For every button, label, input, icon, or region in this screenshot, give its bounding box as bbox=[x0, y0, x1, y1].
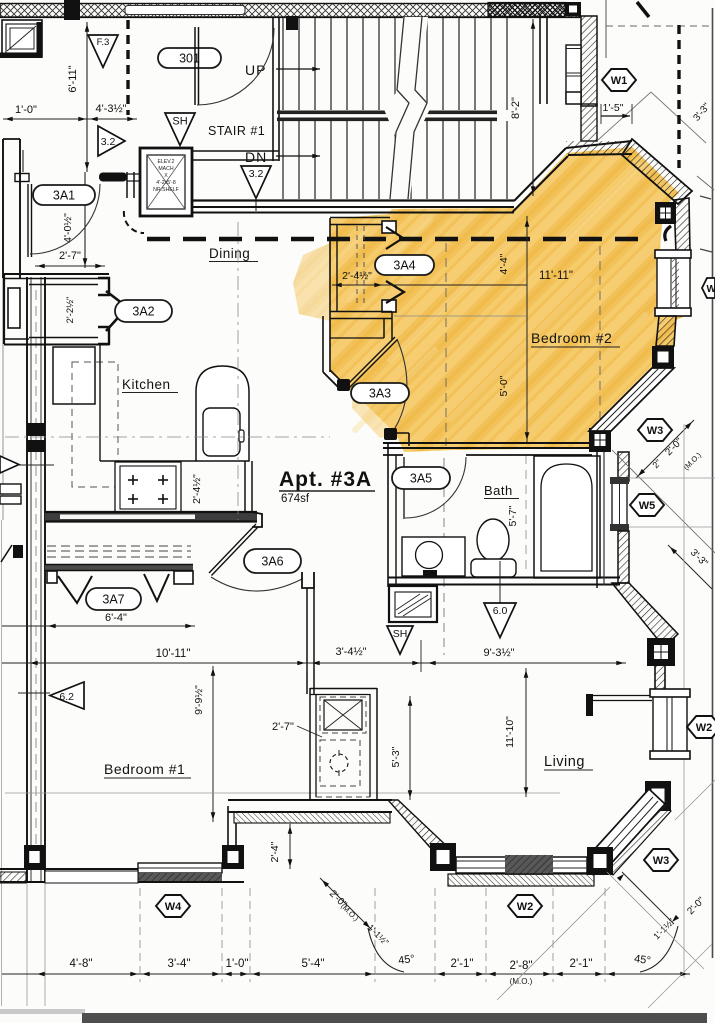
svg-text:3A5: 3A5 bbox=[410, 472, 432, 486]
svg-text:5'-7": 5'-7" bbox=[507, 505, 519, 526]
svg-text:3'-4": 3'-4" bbox=[168, 958, 191, 970]
svg-text:2'-7": 2'-7" bbox=[272, 721, 294, 733]
svg-text:3'-4½": 3'-4½" bbox=[335, 646, 366, 658]
svg-text:10'-11": 10'-11" bbox=[156, 648, 191, 660]
svg-text:MACH: MACH bbox=[158, 166, 174, 172]
svg-text:2'-4½": 2'-4½" bbox=[191, 474, 203, 504]
svg-text:W3: W3 bbox=[653, 855, 670, 867]
svg-text:5'-4": 5'-4" bbox=[302, 958, 325, 970]
svg-text:(M.O.): (M.O.) bbox=[510, 977, 533, 986]
svg-text:3.2: 3.2 bbox=[101, 136, 116, 148]
svg-text:5'-3": 5'-3" bbox=[390, 746, 402, 767]
svg-text:Bedroom #1: Bedroom #1 bbox=[104, 761, 185, 777]
svg-text:3.2: 3.2 bbox=[249, 168, 264, 180]
svg-text:SH: SH bbox=[172, 116, 187, 128]
svg-text:W5: W5 bbox=[639, 500, 656, 512]
svg-text:6'-11": 6'-11" bbox=[67, 65, 79, 92]
svg-text:8'-2": 8'-2" bbox=[510, 97, 522, 119]
svg-text:SH: SH bbox=[393, 628, 408, 640]
svg-text:1'-5": 1'-5" bbox=[603, 102, 624, 114]
svg-text:2'-4½": 2'-4½" bbox=[342, 270, 372, 282]
svg-text:2'-4": 2'-4" bbox=[269, 841, 281, 862]
svg-text:9'-3½": 9'-3½" bbox=[483, 647, 514, 659]
svg-text:F.3: F.3 bbox=[97, 37, 110, 48]
svg-text:W1: W1 bbox=[611, 75, 628, 87]
svg-text:1'-0": 1'-0" bbox=[226, 958, 249, 970]
svg-text:3A4: 3A4 bbox=[393, 259, 415, 273]
svg-text:W2: W2 bbox=[517, 901, 534, 913]
svg-text:W2: W2 bbox=[707, 284, 715, 295]
svg-text:674sf: 674sf bbox=[281, 493, 310, 505]
svg-text:2'-1": 2'-1" bbox=[570, 958, 593, 970]
svg-text:NR.SHELF: NR.SHELF bbox=[153, 187, 179, 193]
svg-text:Bedroom #2: Bedroom #2 bbox=[531, 330, 612, 346]
svg-text:2'-2½": 2'-2½" bbox=[65, 297, 76, 324]
svg-text:6'-4": 6'-4" bbox=[105, 612, 127, 624]
svg-text:2'-1": 2'-1" bbox=[451, 958, 474, 970]
svg-text:Living: Living bbox=[544, 754, 585, 770]
svg-text:ELEV.2: ELEV.2 bbox=[157, 159, 174, 165]
svg-text:2'-8": 2'-8" bbox=[510, 960, 533, 972]
svg-text:W2: W2 bbox=[696, 722, 713, 734]
svg-text:4'-3½": 4'-3½" bbox=[95, 103, 126, 115]
svg-text:4'-4": 4'-4" bbox=[498, 253, 510, 274]
svg-text:6.0: 6.0 bbox=[493, 605, 508, 617]
svg-text:9'-9½": 9'-9½" bbox=[193, 685, 205, 715]
svg-text:5'-0": 5'-0" bbox=[498, 375, 510, 396]
svg-text:W4: W4 bbox=[165, 901, 182, 913]
svg-text:Bath: Bath bbox=[484, 483, 513, 498]
svg-text:2'-7": 2'-7" bbox=[59, 250, 81, 262]
svg-text:Dining: Dining bbox=[209, 246, 250, 261]
svg-text:45°: 45° bbox=[633, 953, 651, 967]
svg-text:11'-11": 11'-11" bbox=[539, 270, 573, 282]
svg-text:W3: W3 bbox=[647, 425, 664, 437]
svg-text:45°: 45° bbox=[398, 953, 416, 967]
svg-text:6.2: 6.2 bbox=[59, 691, 74, 703]
svg-text:3A1: 3A1 bbox=[53, 189, 75, 203]
svg-text:STAIR #1: STAIR #1 bbox=[208, 124, 265, 138]
svg-text:301: 301 bbox=[179, 52, 200, 66]
svg-text:4'-8": 4'-8" bbox=[70, 958, 93, 970]
svg-text:1'-0": 1'-0" bbox=[15, 104, 37, 116]
svg-text:4'-2x5'-8: 4'-2x5'-8 bbox=[156, 180, 176, 186]
svg-text:11'-10": 11'-10" bbox=[504, 716, 516, 748]
svg-text:3A2: 3A2 bbox=[132, 305, 154, 319]
svg-text:3A3: 3A3 bbox=[369, 387, 391, 401]
svg-text:3A7: 3A7 bbox=[102, 593, 124, 607]
svg-text:4'-0½": 4'-0½" bbox=[62, 213, 74, 243]
svg-text:3A6: 3A6 bbox=[261, 555, 283, 569]
svg-text:X: X bbox=[164, 173, 168, 179]
svg-text:Apt. #3A: Apt. #3A bbox=[279, 468, 372, 491]
svg-text:Kitchen: Kitchen bbox=[122, 377, 171, 392]
svg-text:UP: UP bbox=[245, 62, 266, 78]
svg-text:DN: DN bbox=[245, 149, 267, 165]
